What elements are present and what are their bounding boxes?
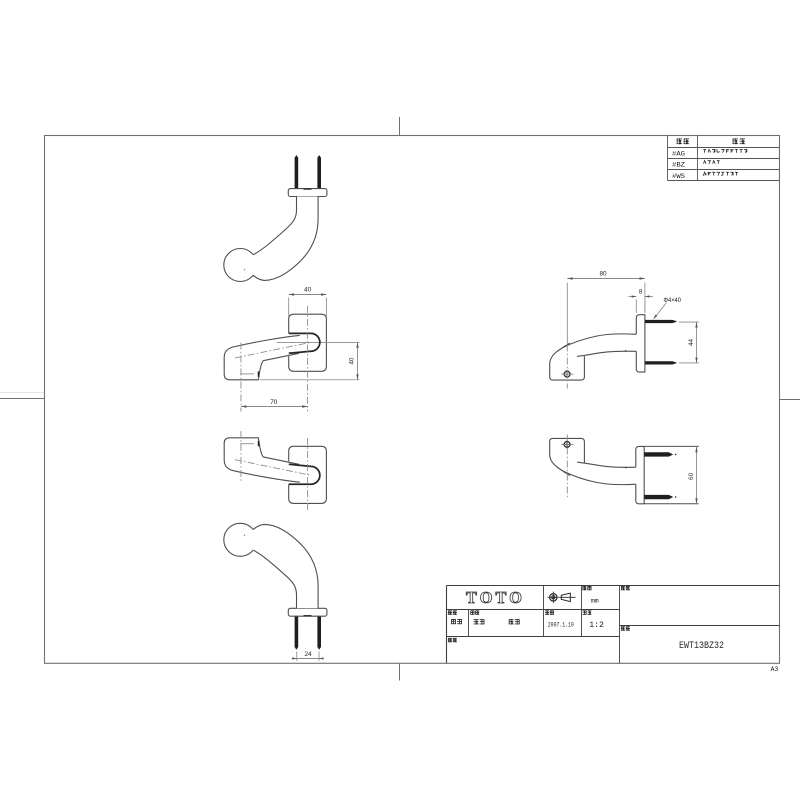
svg-text:EWT13BZ32: EWT13BZ32 <box>679 641 724 652</box>
svg-text:mm: mm <box>591 598 599 605</box>
svg-text:#WS: #WS <box>672 173 685 181</box>
svg-text:40: 40 <box>349 357 356 365</box>
svg-text:8: 8 <box>639 289 643 296</box>
svg-text:TOTO: TOTO <box>466 588 525 607</box>
svg-text:70: 70 <box>270 399 278 406</box>
svg-text:60: 60 <box>688 472 695 480</box>
svg-text:#AG: #AG <box>672 150 685 158</box>
svg-text:#BZ: #BZ <box>672 162 685 170</box>
svg-text:80: 80 <box>599 270 607 277</box>
svg-text:A3: A3 <box>771 666 779 673</box>
svg-text:40: 40 <box>304 287 312 294</box>
svg-text:1:2: 1:2 <box>589 621 604 630</box>
svg-text:2007.1.10: 2007.1.10 <box>548 622 574 629</box>
svg-text:44: 44 <box>688 339 695 347</box>
svg-text:24: 24 <box>304 651 312 658</box>
